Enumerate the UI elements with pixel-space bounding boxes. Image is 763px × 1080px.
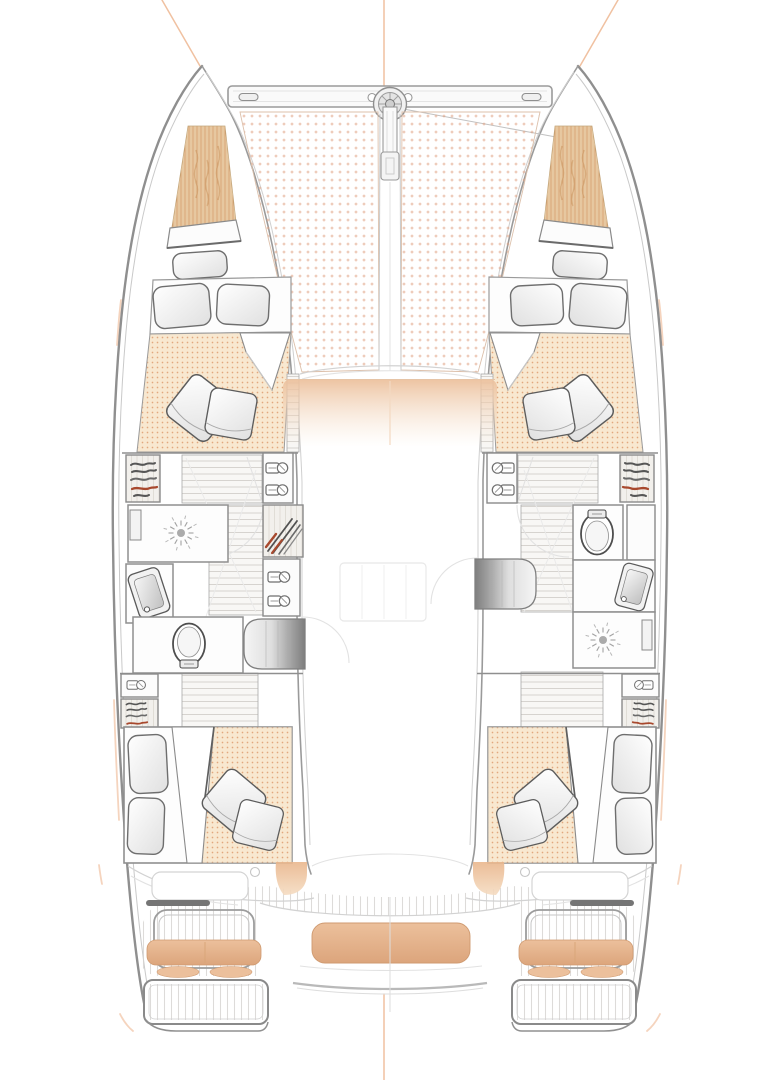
toilet-room-starboard xyxy=(573,505,655,560)
cockpit-quarter-starboard xyxy=(466,862,652,1031)
corridor-floor xyxy=(521,672,603,727)
forward-cabinets-port xyxy=(126,453,293,503)
aft-cabin-starboard xyxy=(488,727,656,863)
center-bench-cushion xyxy=(312,923,470,963)
corridor-floor xyxy=(182,673,258,727)
companionway-stairs-port xyxy=(244,619,305,669)
washbasin-room-port xyxy=(126,564,173,623)
bow-rigging-guide-port xyxy=(162,0,200,66)
aft-cabin-port xyxy=(124,727,292,863)
floorplan-page: Top-down interior deck plan of a sailing… xyxy=(0,0,763,1080)
beam-handle-slot xyxy=(239,94,258,101)
beam-handle-slot xyxy=(522,94,541,101)
toilet-room-port xyxy=(133,617,243,673)
saloon-ghost-galley xyxy=(303,558,477,663)
locker-cabinet xyxy=(263,559,300,616)
forward-cabinets-starboard xyxy=(487,453,654,503)
locker-cabinet xyxy=(627,505,655,560)
cockpit-quarter-port xyxy=(128,862,314,1031)
shower-window xyxy=(642,620,652,650)
shower-room-port xyxy=(128,505,228,562)
catamaran-floorplan: Top-down interior deck plan of a sailing… xyxy=(0,0,763,1080)
bow-rigging-guide-starboard xyxy=(580,0,618,66)
aft-cabinets-starboard xyxy=(622,674,659,729)
shower-window xyxy=(130,510,141,540)
saloon-front xyxy=(283,366,497,447)
washbasin-room-starboard xyxy=(573,560,655,612)
bowsprit xyxy=(381,107,399,180)
shower-room-starboard xyxy=(573,612,655,668)
aft-cabinets-port xyxy=(121,674,158,729)
companionway-stairs-starboard xyxy=(475,559,536,609)
forestay-track xyxy=(379,114,380,371)
